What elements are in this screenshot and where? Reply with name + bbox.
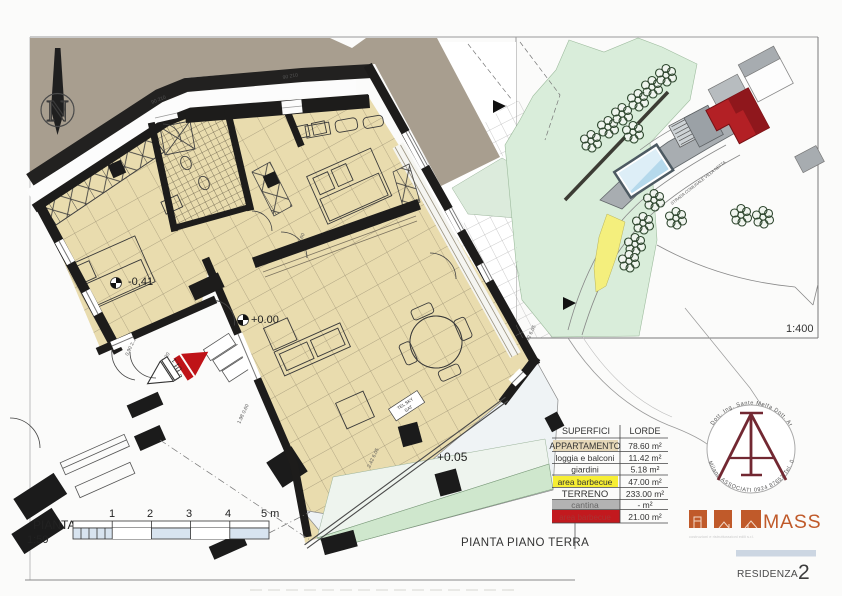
svg-text:-0,41: -0,41	[128, 276, 153, 288]
svg-text:+0.05: +0.05	[437, 450, 468, 464]
svg-text:4: 4	[225, 508, 231, 520]
svg-text:RESIDENZA: RESIDENZA	[737, 569, 798, 580]
svg-text:MASS: MASS	[763, 511, 821, 533]
svg-text:N: N	[46, 93, 68, 128]
svg-text:area barbecue: area barbecue	[559, 513, 611, 522]
svg-text:giardini: giardini	[571, 465, 599, 475]
svg-text:1:50: 1:50	[27, 534, 48, 546]
svg-text:21.00 m²: 21.00 m²	[628, 512, 662, 522]
svg-text:loggia e balconi: loggia e balconi	[555, 453, 614, 463]
svg-text:SUPERFICI: SUPERFICI	[562, 426, 610, 436]
svg-text:- m²: - m²	[637, 500, 652, 510]
svg-text:5 m: 5 m	[261, 508, 279, 520]
svg-text:+0.00: +0.00	[251, 314, 279, 326]
svg-text:47.00 m²: 47.00 m²	[628, 477, 662, 487]
svg-text:TERRENO: TERRENO	[562, 489, 608, 500]
svg-text:11.42 m²: 11.42 m²	[629, 453, 662, 463]
svg-text:costruzioni e ristrutturazioni: costruzioni e ristrutturazioni edili s.r…	[689, 534, 754, 539]
svg-text:2: 2	[798, 561, 810, 584]
svg-text:LORDE: LORDE	[629, 426, 660, 436]
svg-text:3: 3	[186, 508, 192, 520]
svg-text:PIANTA PIANO TERRA: PIANTA PIANO TERRA	[461, 537, 589, 549]
svg-text:233.00 m²: 233.00 m²	[626, 489, 664, 499]
svg-text:1: 1	[109, 508, 115, 520]
svg-text:area barbecue: area barbecue	[558, 477, 613, 487]
svg-text:1:400: 1:400	[786, 323, 814, 335]
svg-text:cantina: cantina	[571, 500, 599, 510]
svg-text:APPARTAMENTO: APPARTAMENTO	[549, 441, 620, 451]
svg-text:5.18 m²: 5.18 m²	[631, 465, 660, 475]
svg-text:PIANTA: PIANTA	[33, 518, 75, 532]
svg-text:2: 2	[147, 508, 153, 520]
svg-text:78.60 m²: 78.60 m²	[628, 441, 662, 451]
